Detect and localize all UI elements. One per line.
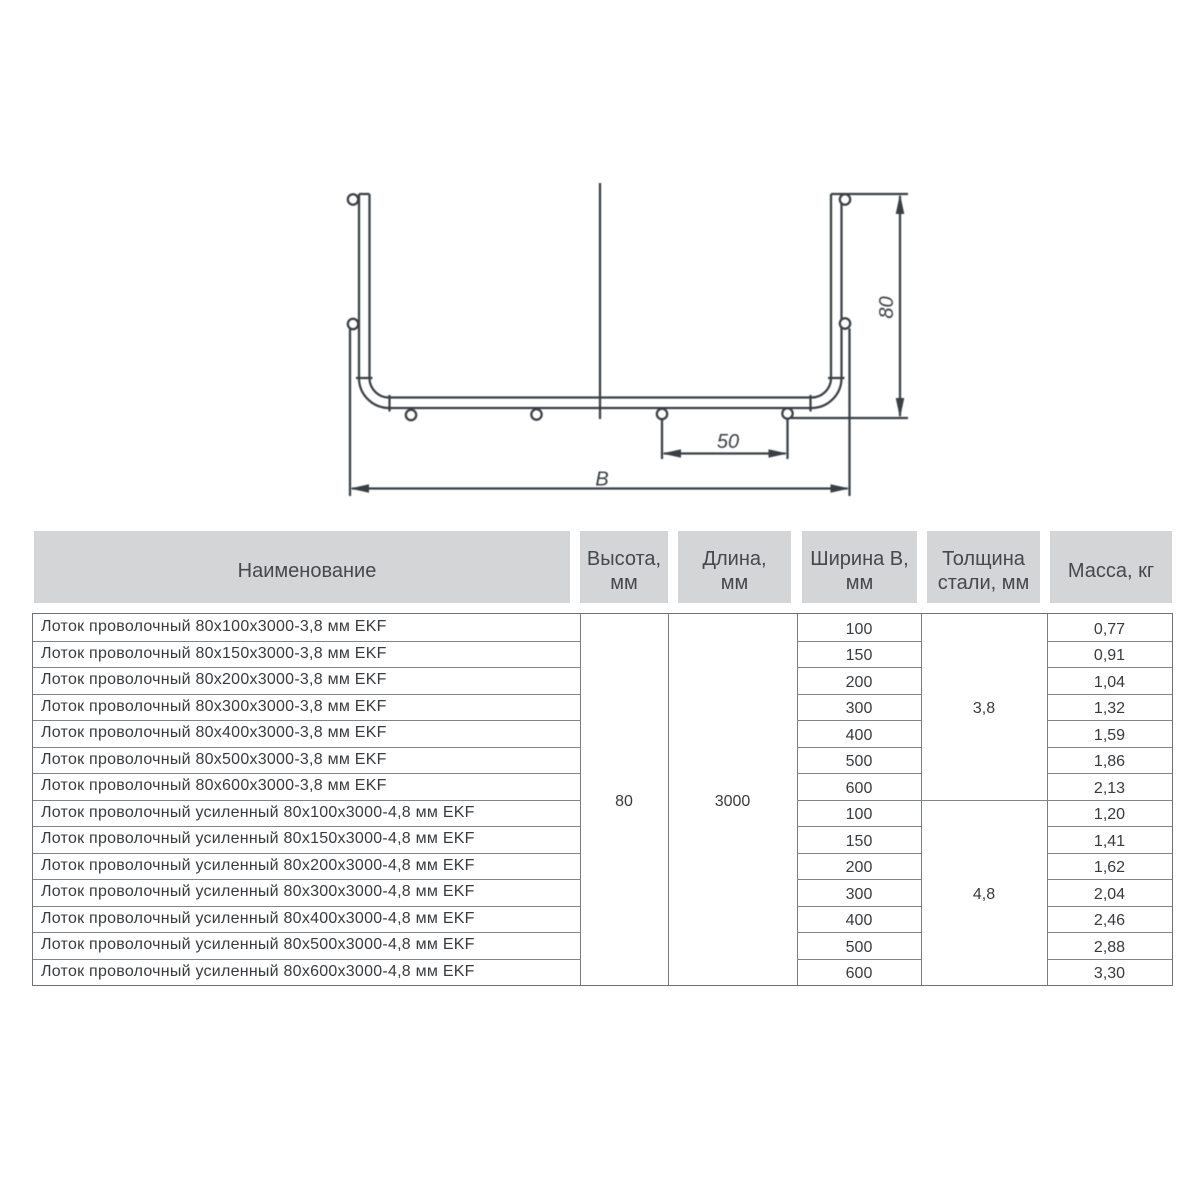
svg-text:50: 50 xyxy=(717,431,739,453)
svg-text:B: B xyxy=(595,469,608,491)
svg-text:80: 80 xyxy=(876,296,898,318)
